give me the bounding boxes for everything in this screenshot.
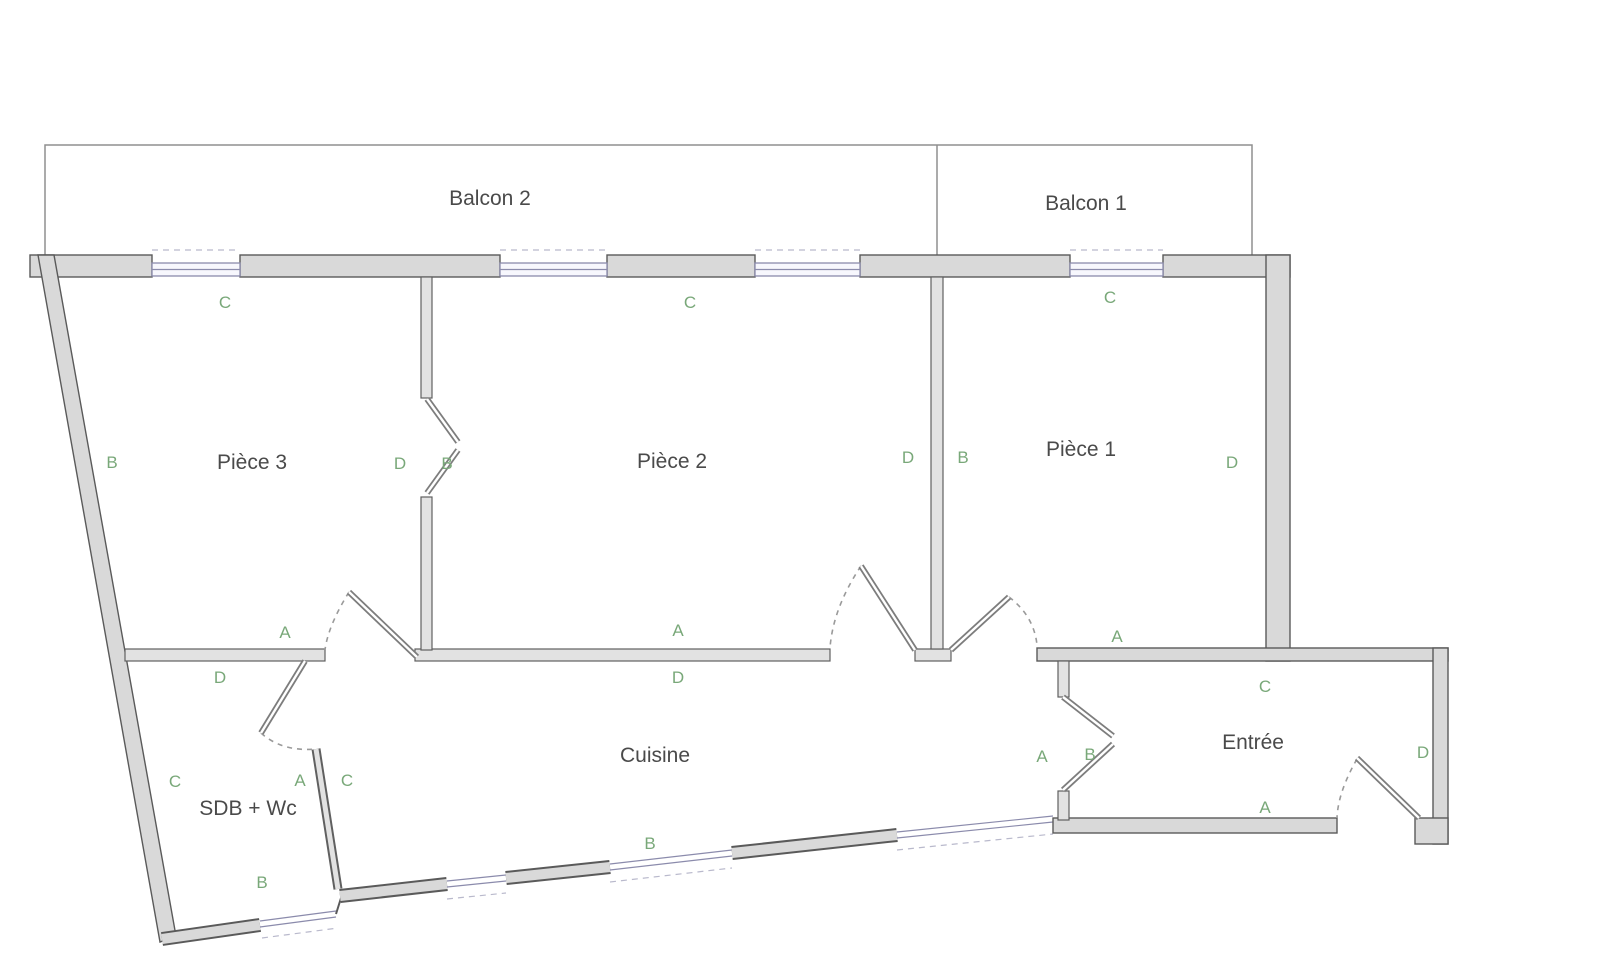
wall-marker: A <box>294 771 306 790</box>
wall-under-piece2 <box>415 649 830 661</box>
entree-bottom-wall <box>1053 818 1337 833</box>
floor-plan: Balcon 2 Balcon 1 Pièce 3 Pièce 2 Pièce … <box>0 0 1600 980</box>
wall-marker: C <box>341 771 353 790</box>
wall-segment <box>860 255 1070 277</box>
entree-left-wall-stub-bottom <box>1058 791 1069 820</box>
door-cuisine-entree-chevron <box>1063 697 1113 790</box>
room-label-sdb: SDB + Wc <box>199 797 296 820</box>
window-cuisine-3 <box>897 816 1053 850</box>
entree-left-wall-stub-top <box>1058 661 1069 697</box>
room-label-piece2: Pièce 2 <box>637 450 707 473</box>
wall-marker: C <box>219 293 231 312</box>
entree-corner-chunk <box>1415 818 1448 844</box>
window-top-1 <box>152 250 240 276</box>
room-label-piece1: Pièce 1 <box>1046 438 1116 461</box>
door-piece3 <box>325 592 417 657</box>
door-piece1 <box>951 597 1037 650</box>
window-top-4 <box>1070 250 1163 276</box>
partition-piece2-piece1 <box>931 277 943 649</box>
wall-markers: C C C B D B D B D A A A D D C A B D A B … <box>106 288 1429 892</box>
window-top-3 <box>755 250 860 276</box>
wall-marker: D <box>394 454 406 473</box>
entree-top-wall <box>1037 648 1448 661</box>
room-label-piece3: Pièce 3 <box>217 451 287 474</box>
wall-marker: B <box>256 873 267 892</box>
door-piece2 <box>830 566 915 650</box>
wall-marker: B <box>644 834 655 853</box>
wall-stub-piece2-piece1 <box>915 649 951 661</box>
wall-marker: B <box>106 453 117 472</box>
wall-marker: D <box>1226 453 1238 472</box>
wall-segment <box>607 255 755 277</box>
wall-marker: B <box>957 448 968 467</box>
wall-marker: A <box>1259 798 1271 817</box>
room-label-entree: Entrée <box>1222 731 1284 754</box>
wall-marker: C <box>1104 288 1116 307</box>
wall-marker: A <box>672 621 684 640</box>
window-sdb-bottom <box>260 911 338 938</box>
window-top-2 <box>500 250 607 276</box>
wall-marker: C <box>684 293 696 312</box>
window-cuisine-2 <box>610 850 732 882</box>
room-label-balcon2: Balcon 2 <box>449 187 531 210</box>
entree-right-wall <box>1433 648 1448 844</box>
window-cuisine-1 <box>447 875 506 899</box>
entry-door <box>1337 758 1419 818</box>
wall-marker: C <box>169 772 181 791</box>
wall-marker: A <box>279 623 291 642</box>
wall-marker: C <box>1259 677 1271 696</box>
wall-marker: D <box>1417 743 1429 762</box>
room-labels: Balcon 2 Balcon 1 Pièce 3 Pièce 2 Pièce … <box>199 187 1284 820</box>
sdb-walls <box>162 749 341 939</box>
right-exterior-wall <box>1266 255 1290 661</box>
wall-marker: A <box>1111 627 1123 646</box>
wall-marker: D <box>214 668 226 687</box>
cuisine-bottom-wall <box>340 816 1053 899</box>
wall-marker: B <box>1084 745 1095 764</box>
wall-marker: A <box>1036 747 1048 766</box>
door-piece3-piece2-chevron <box>427 399 458 493</box>
door-sdb <box>261 661 316 749</box>
left-exterior-wall <box>38 255 176 942</box>
interior-horizontal-wall <box>125 648 1448 661</box>
wall-marker: D <box>902 448 914 467</box>
room-label-balcon1: Balcon 1 <box>1045 192 1127 215</box>
wall-marker: B <box>441 454 452 473</box>
wall-under-piece3 <box>125 649 325 661</box>
room-label-cuisine: Cuisine <box>620 744 690 767</box>
wall-segment <box>240 255 500 277</box>
top-exterior-wall <box>30 250 1290 277</box>
wall-marker: D <box>672 668 684 687</box>
